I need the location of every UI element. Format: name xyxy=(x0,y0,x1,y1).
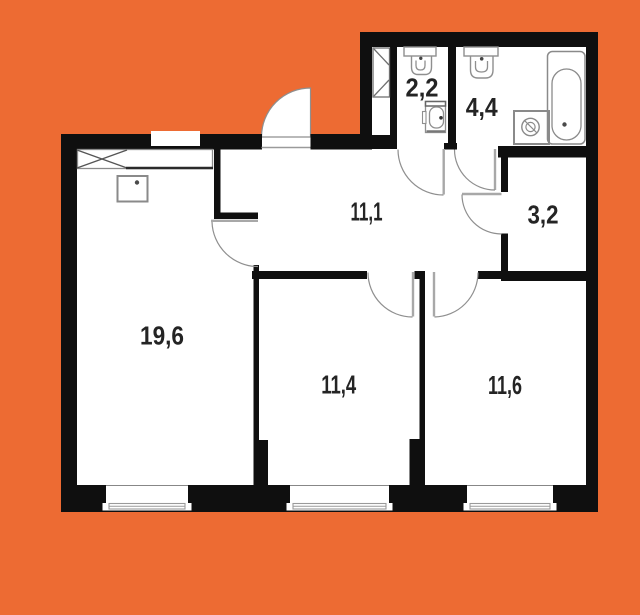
svg-text:2,2: 2,2 xyxy=(406,73,439,103)
svg-text:3,2: 3,2 xyxy=(528,200,559,230)
svg-text:11,1: 11,1 xyxy=(351,197,383,227)
svg-text:11,6: 11,6 xyxy=(488,370,522,400)
svg-text:11,4: 11,4 xyxy=(321,370,356,400)
svg-text:19,6: 19,6 xyxy=(140,321,184,351)
svg-text:4,4: 4,4 xyxy=(466,92,498,122)
